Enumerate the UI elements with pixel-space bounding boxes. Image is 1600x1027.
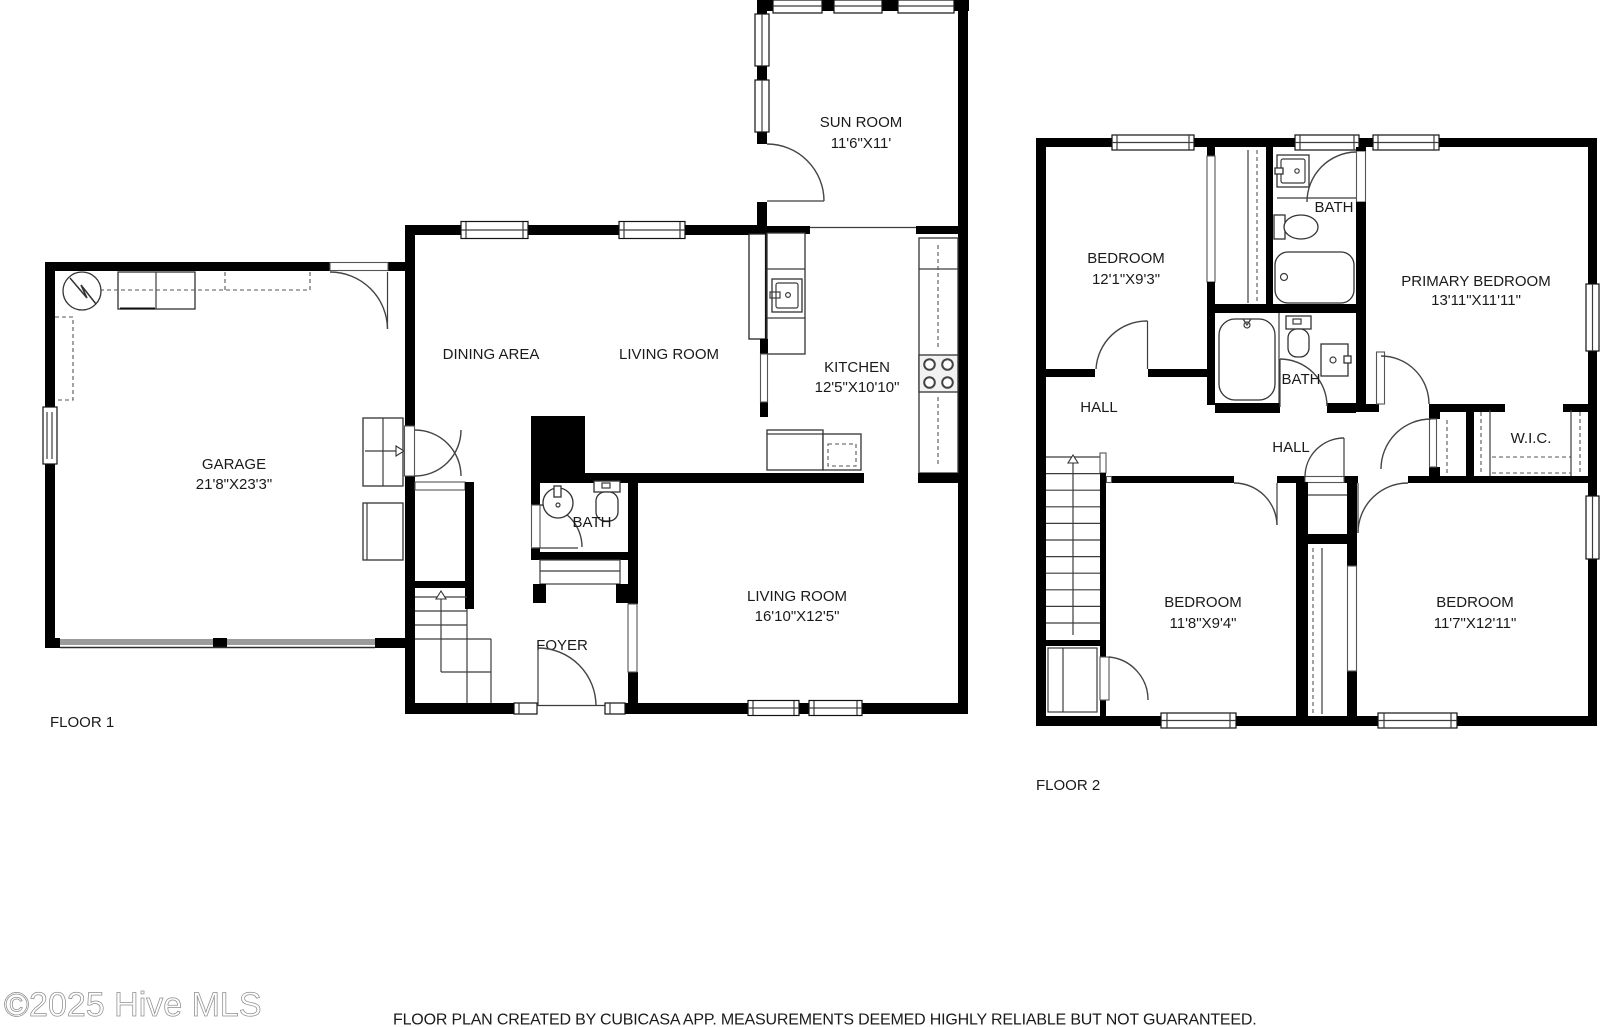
svg-text:KITCHEN: KITCHEN [824, 359, 890, 376]
svg-text:FLOOR PLAN CREATED BY CUBICASA: FLOOR PLAN CREATED BY CUBICASA APP. MEAS… [393, 1012, 1257, 1027]
svg-text:SUN ROOM: SUN ROOM [820, 114, 903, 131]
svg-text:BATH: BATH [573, 514, 612, 531]
svg-text:DINING AREA: DINING AREA [443, 346, 540, 363]
svg-text:12'5"X10'10": 12'5"X10'10" [815, 379, 900, 396]
svg-text:16'10"X12'5": 16'10"X12'5" [755, 608, 840, 625]
svg-text:LIVING ROOM: LIVING ROOM [619, 346, 719, 363]
svg-text:BEDROOM: BEDROOM [1436, 594, 1514, 611]
svg-text:BEDROOM: BEDROOM [1087, 250, 1165, 267]
svg-text:GARAGE: GARAGE [202, 456, 266, 473]
svg-text:W.I.C.: W.I.C. [1511, 430, 1552, 447]
svg-text:HALL: HALL [1272, 439, 1310, 456]
svg-text:FLOOR 2: FLOOR 2 [1036, 777, 1100, 794]
svg-text:FOYER: FOYER [536, 637, 588, 654]
svg-text:BEDROOM: BEDROOM [1164, 594, 1242, 611]
svg-text:PRIMARY BEDROOM: PRIMARY BEDROOM [1401, 273, 1550, 290]
svg-text:LIVING ROOM: LIVING ROOM [747, 588, 847, 605]
svg-text:13'11"X11'11": 13'11"X11'11" [1431, 292, 1521, 309]
svg-text:HALL: HALL [1080, 399, 1118, 416]
svg-text:BATH: BATH [1282, 371, 1321, 388]
svg-text:FLOOR 1: FLOOR 1 [50, 714, 114, 731]
svg-text:12'1"X9'3": 12'1"X9'3" [1092, 271, 1160, 288]
svg-text:11'7"X12'11": 11'7"X12'11" [1434, 615, 1517, 632]
svg-text:©2025 Hive MLS: ©2025 Hive MLS [4, 986, 262, 1024]
svg-text:11'8"X9'4": 11'8"X9'4" [1170, 615, 1237, 632]
svg-text:BATH: BATH [1315, 199, 1354, 216]
svg-text:21'8"X23'3": 21'8"X23'3" [196, 476, 272, 493]
svg-text:11'6"X11': 11'6"X11' [831, 135, 892, 152]
